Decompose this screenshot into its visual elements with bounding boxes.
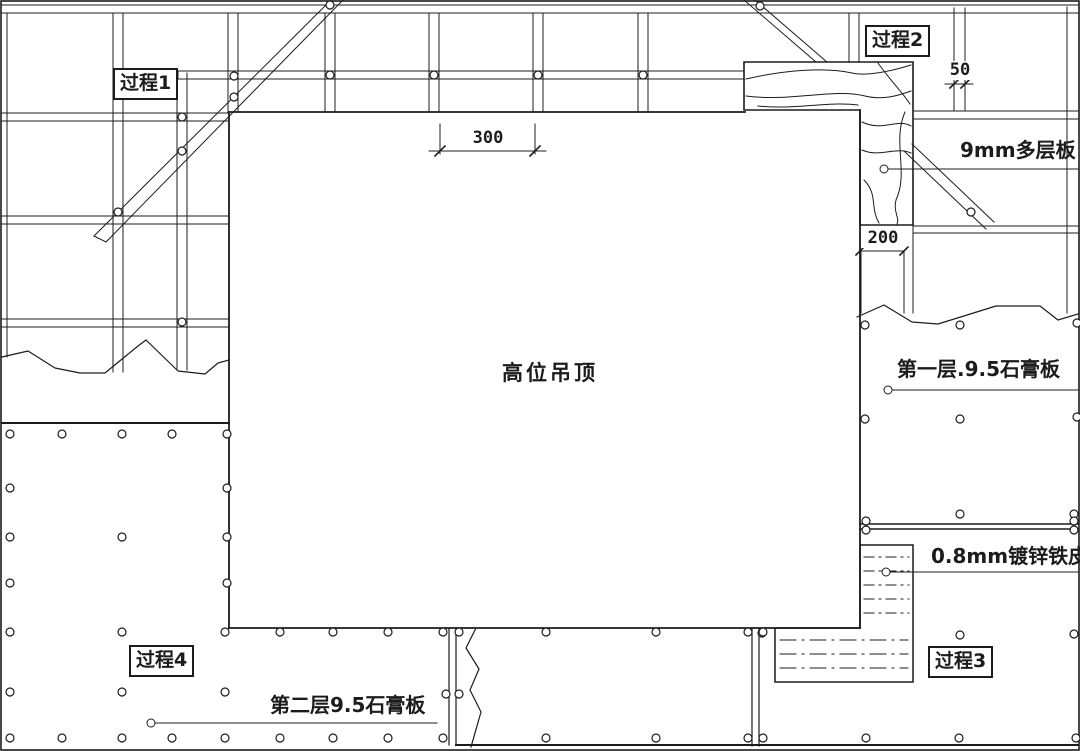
process2-tag: 过程2 [865, 25, 930, 57]
dimension-50: 50 [945, 61, 975, 80]
process3-label: 过程3 [935, 650, 986, 672]
process4-label: 过程4 [136, 649, 187, 671]
center-panel-label: 高位吊顶 [502, 362, 598, 385]
ceiling-construction-drawing: 过程1 过程2 过程3 过程4 高位吊顶 9mm多层板 第一层.9.5石膏板 0… [0, 0, 1080, 751]
zinc-sheet-label: 0.8mm镀锌铁皮 [931, 545, 1080, 567]
plywood-label: 9mm多层板 [960, 139, 1076, 161]
process1-label: 过程1 [120, 72, 171, 94]
gypsum-layer1-label: 第一层.9.5石膏板 [897, 358, 1060, 380]
dimension-200: 200 [862, 229, 904, 248]
process1-tag: 过程1 [113, 68, 178, 100]
process3-tag: 过程3 [928, 646, 993, 678]
gypsum-layer2-label: 第二层9.5石膏板 [270, 694, 425, 716]
process2-label: 过程2 [872, 29, 923, 51]
process4-tag: 过程4 [129, 645, 194, 677]
dimension-300: 300 [466, 130, 510, 147]
